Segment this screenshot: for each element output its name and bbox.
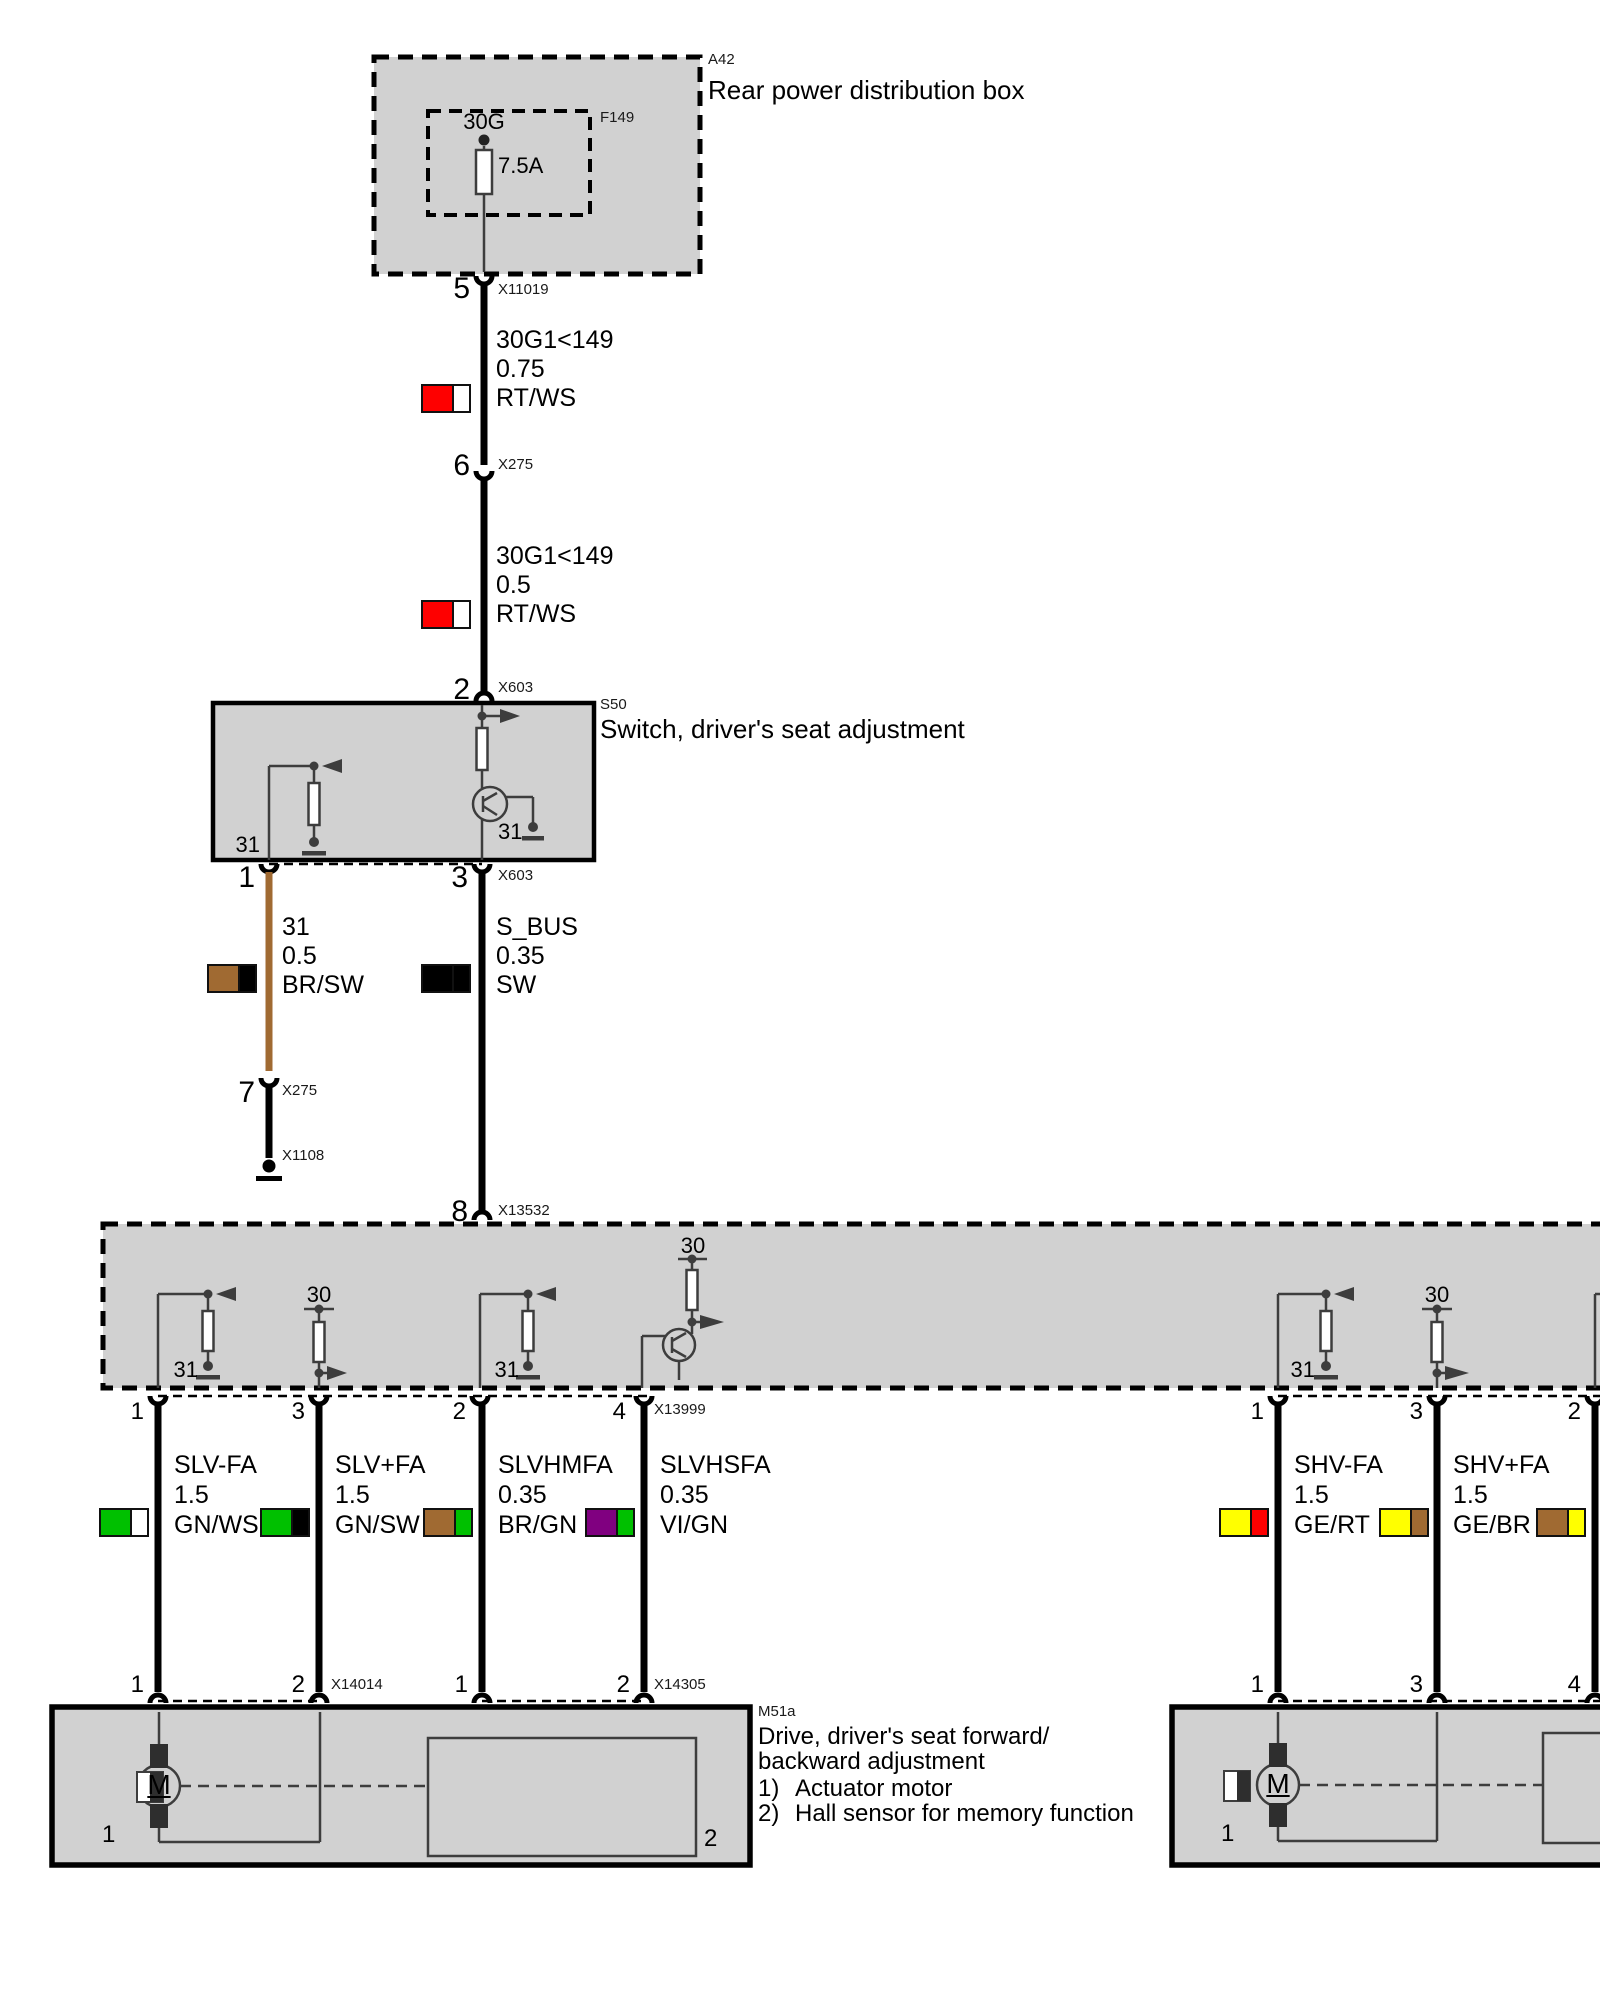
box-label-m51a-line2: backward adjustment [758,1749,985,1774]
pin-x14014-1: 1 [96,1671,144,1699]
resistor-symbol [203,1311,214,1351]
wire-color: BR/SW [282,971,364,1000]
pin-mod-3: 3 [257,1398,305,1426]
fuse-rating: 7.5A [498,154,543,178]
pin-mod-r3: 3 [1375,1398,1423,1426]
resistor-symbol [687,1270,698,1310]
note-1-number: 1) [758,1776,779,1801]
wire-color-swatch-gebr [1379,1508,1429,1537]
seat-switch-box [213,703,594,860]
wire-color-swatch-rtws [421,600,471,629]
connector-id-x14305: X14305 [654,1677,706,1693]
resistor-symbol [314,1322,325,1362]
ground-symbol [1314,1375,1338,1380]
wire-gauge: 1.5 [1294,1480,1383,1510]
wire-30g1-075-rtws [476,276,492,465]
box-label-a42: Rear power distribution box [708,76,1025,104]
wire-circuit: SLVHMFA [498,1450,613,1480]
box-label-m51a-line1: Drive, driver's seat forward/ [758,1724,1049,1749]
pin-5: 5 [422,272,470,306]
connector-x275-ground-leg [256,1078,282,1181]
box-id-a42: A42 [708,52,735,68]
connector-id-x275: X275 [282,1083,317,1099]
wire-30g1-05-rtws [476,480,492,701]
wire-label-30g1-075: 30G1<149 0.75 RT/WS [496,326,613,413]
connector-id-x13532: X13532 [498,1203,550,1219]
resistor-symbol [1432,1322,1443,1362]
note-1-text: Actuator motor [795,1776,952,1801]
ground-point-x1108 [263,1160,276,1173]
pin-8: 8 [420,1195,468,1229]
connector-x275-symbol [476,471,492,479]
wire-sbus-sw [474,872,490,1220]
internal-ref-2: 2 [704,1826,717,1852]
pin-mod-r2: 2 [1533,1398,1581,1426]
wire-color-swatch-gnsw [260,1508,310,1537]
pin-7: 7 [207,1076,255,1110]
wire-circuit: SHV+FA [1453,1450,1550,1480]
wire-label-31-brsw: 31 0.5 BR/SW [282,913,364,1000]
pin-right-4: 4 [1533,1671,1581,1699]
note-2-number: 2) [758,1801,779,1826]
pin-2: 2 [422,673,470,707]
pin-mod-r1: 1 [1216,1398,1264,1426]
wire-circuit: S_BUS [496,913,578,942]
wire-circuit: 30G1<149 [496,542,613,571]
ground-symbol [522,836,544,841]
wire-label-slv-fa: SLV-FA 1.5 GN/WS [174,1450,259,1540]
resistor-symbol [1321,1311,1332,1351]
ground-symbol [196,1375,220,1380]
internal-ref-1: 1 [1221,1821,1234,1847]
diagram-graphics [0,0,1600,2000]
pin-x14305-2: 2 [582,1671,630,1699]
wire-color: RT/WS [496,600,613,629]
wire-gauge: 0.35 [660,1480,771,1510]
wire-gauge: 1.5 [1453,1480,1550,1510]
resistor-symbol [309,783,320,825]
internal-ref-1: 1 [102,1822,115,1848]
pin-x14305-1: 1 [420,1671,468,1699]
wire-circuit: 30G1<149 [496,326,613,355]
wire-color-swatch-brgn [423,1508,473,1537]
connector-id-x603: X603 [498,680,533,696]
box-id-m51a: M51a [758,1704,796,1720]
power-label-30: 30 [295,1283,343,1307]
wire-color: SW [496,971,578,1000]
wire-color: VI/GN [660,1510,771,1540]
wire-circuit: SLV+FA [335,1450,426,1480]
wire-circuit: SHV-FA [1294,1450,1383,1480]
wire-color: RT/WS [496,384,613,413]
connector-id-x275: X275 [498,457,533,473]
wire-gauge: 1.5 [174,1480,259,1510]
wire-color-swatch-brsw [207,964,257,993]
pin-x14014-2: 2 [257,1671,305,1699]
ground-label-31: 31 [471,1358,519,1382]
wire-gauge: 0.75 [496,355,613,384]
power-label-30: 30 [669,1234,717,1258]
connector-id-x14014: X14014 [331,1677,383,1693]
power-label-30: 30 [1413,1283,1461,1307]
wire-color-swatch-sw [421,964,471,993]
wire-color-swatch-gert [1219,1508,1269,1537]
pin-mod-4: 4 [578,1398,626,1426]
motor-letter: M [1258,1768,1298,1800]
box-id-f149: F149 [600,110,634,126]
ground-symbol [302,851,326,856]
fuse-name: 30G [444,110,524,134]
wire-label-30g1-05: 30G1<149 0.5 RT/WS [496,542,613,629]
pin-mod-1: 1 [96,1398,144,1426]
ground-label-31: 31 [1267,1358,1315,1382]
connector-id-x13999: X13999 [654,1402,706,1418]
wire-label-slvhsfa: SLVHSFA 0.35 VI/GN [660,1450,771,1540]
wire-color-swatch-brge [1536,1508,1586,1537]
pin-s50-1: 1 [207,861,255,895]
motor-wires [158,1404,1595,1692]
wire-circuit: 31 [282,913,364,942]
wire-color-swatch-vign [585,1508,635,1537]
wire-color: GN/SW [335,1510,426,1540]
wire-gauge: 0.5 [496,571,613,600]
wire-circuit: SLVHSFA [660,1450,771,1480]
connector-id-x1108: X1108 [282,1148,324,1164]
drive-box-right [1172,1707,1600,1865]
ground-label-31: 31 [150,1358,198,1382]
wire-color-swatch-gnws [99,1508,149,1537]
wire-gauge: 0.35 [496,942,578,971]
wiring-diagram: A42 Rear power distribution box F149 30G… [0,0,1600,2000]
note-2-text: Hall sensor for memory function [795,1801,1134,1826]
motor-letter: M [139,1769,179,1801]
pin-6: 6 [422,449,470,483]
wire-circuit: SLV-FA [174,1450,259,1480]
ground-symbol [516,1375,540,1380]
wire-gauge: 0.5 [282,942,364,971]
ground-label-31: 31 [212,833,260,857]
wire-label-sbus: S_BUS 0.35 SW [496,913,578,1000]
pin-mod-2: 2 [418,1398,466,1426]
connector-id-x603: X603 [498,868,533,884]
pin-s50-3: 3 [420,861,468,895]
pin-right-1: 1 [1216,1671,1264,1699]
pin-right-3: 3 [1375,1671,1423,1699]
resistor-symbol [523,1311,534,1351]
wire-gauge: 0.35 [498,1480,613,1510]
wire-color-swatch-rtws [421,384,471,413]
wire-label-slv-plus-fa: SLV+FA 1.5 GN/SW [335,1450,426,1540]
wire-label-shv-fa: SHV-FA 1.5 GE/RT [1294,1450,1383,1540]
wire-color: GN/WS [174,1510,259,1540]
box-label-s50: Switch, driver's seat adjustment [600,715,965,743]
ground-label-31: 31 [498,820,522,844]
box-id-s50: S50 [600,697,627,713]
wire-color: GE/RT [1294,1510,1383,1540]
resistor-symbol [477,728,488,770]
wire-gauge: 1.5 [335,1480,426,1510]
connector-id-x11019: X11019 [498,282,549,298]
